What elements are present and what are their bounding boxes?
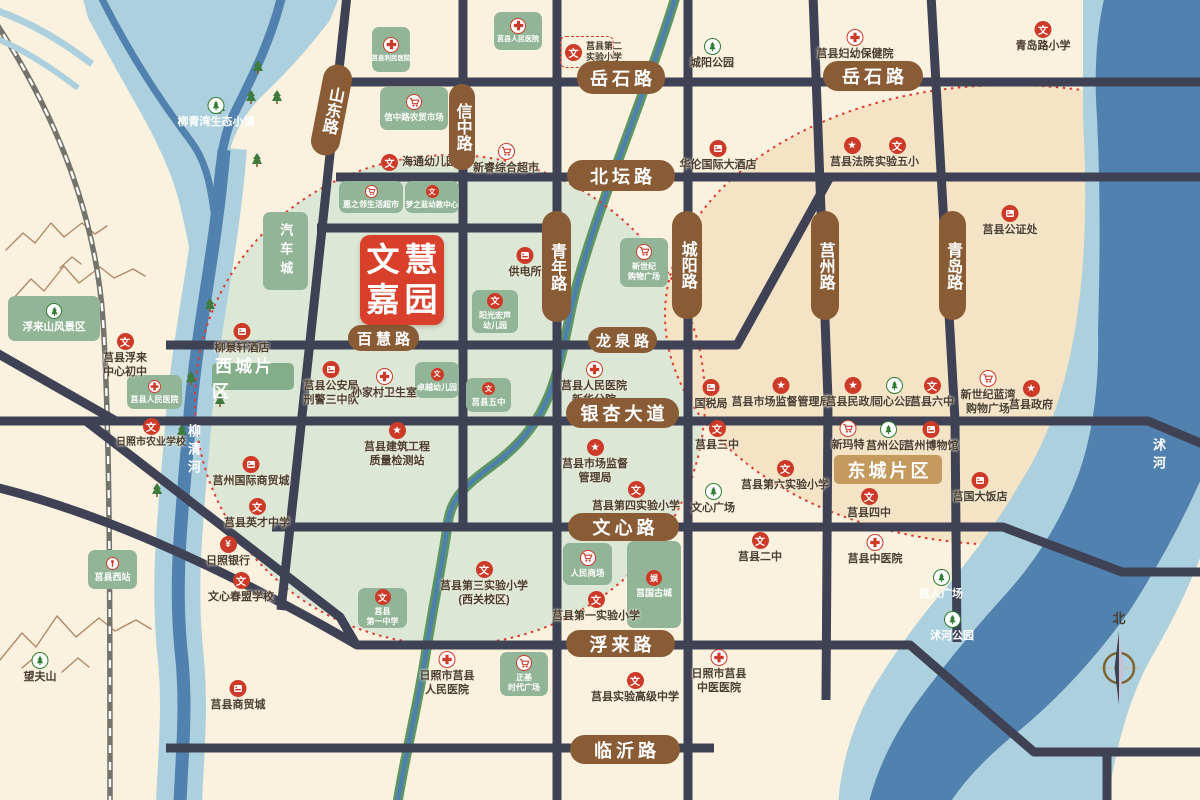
poi-label: 供电所 bbox=[509, 266, 542, 280]
hospital-icon bbox=[711, 649, 728, 666]
map-poi: 文莒县二中 bbox=[738, 532, 782, 565]
poi-label: 莒县第六实验小学 bbox=[741, 479, 829, 493]
road-label-text: 文心路 bbox=[589, 514, 659, 540]
map-poi: 文莒县第六实验小学 bbox=[741, 460, 829, 493]
map-poi: ★莒县法院 bbox=[830, 137, 874, 170]
poi-block-label: 汽车城 bbox=[278, 223, 294, 280]
map-poi: 文心广场 bbox=[691, 483, 735, 516]
road-label: 岳石路 bbox=[823, 61, 923, 91]
poi-label: 莒县三中 bbox=[695, 439, 739, 453]
road-label-text: 莒州路 bbox=[813, 242, 836, 290]
map-poi: ¥日照银行 bbox=[206, 536, 250, 569]
hospital-icon bbox=[586, 361, 603, 378]
road-label: 银杏大道 bbox=[566, 398, 679, 428]
government-icon: ★ bbox=[389, 422, 406, 439]
river-name-label: 柳清河 bbox=[184, 424, 203, 478]
poi-block-label: 人民商场 bbox=[570, 568, 604, 578]
poi-block-label: 莒县利民医院 bbox=[372, 55, 411, 63]
poi-block: 新世纪购物广场 bbox=[620, 238, 668, 287]
poi-label: 莒县建筑工程质量检测站 bbox=[364, 441, 430, 469]
road-label-text: 银杏大道 bbox=[577, 400, 669, 426]
poi-label: 望夫山 bbox=[24, 671, 57, 685]
poi-label: 日照市莒县中医医院 bbox=[692, 668, 747, 696]
poi-block: 正基时代广场 bbox=[500, 652, 548, 696]
poi-block-label: 惠之邻生活超市 bbox=[343, 200, 399, 210]
map-poi: 文海通幼儿园 bbox=[381, 154, 457, 171]
poi-block: 文梦之蓝幼教中心 bbox=[405, 181, 459, 213]
park-icon bbox=[705, 483, 722, 500]
poi-label: 莒县二中 bbox=[738, 551, 782, 565]
park-icon bbox=[880, 421, 897, 438]
shopping-cart-icon bbox=[840, 420, 857, 437]
road-label-text: 百慧路 bbox=[353, 328, 414, 349]
map-poi: 文莒县英才中学 bbox=[224, 498, 290, 531]
poi-label: 日照市农业学校 bbox=[116, 437, 186, 450]
map-poi: 文莒县四中 bbox=[847, 488, 891, 521]
school-icon: 文 bbox=[565, 44, 582, 61]
poi-block: 浮来山风景区 bbox=[8, 296, 100, 341]
shopping-cart-icon bbox=[636, 244, 652, 260]
poi-label: 国税局 bbox=[695, 398, 728, 412]
map-poi: 文莒县六中 bbox=[910, 377, 954, 410]
poi-block-label: 正基 bbox=[516, 673, 532, 683]
road-label-text: 浮来路 bbox=[586, 631, 656, 657]
building-icon bbox=[703, 379, 720, 396]
map-poi: 文实验五小 bbox=[875, 137, 919, 170]
poi-block: 莒县人民医院 bbox=[494, 12, 542, 50]
school-icon: 文 bbox=[375, 589, 391, 605]
road-label-text: 临沂路 bbox=[590, 737, 660, 763]
poi-label: 莒县市场监督管理局 bbox=[732, 396, 831, 410]
park-icon bbox=[32, 652, 49, 669]
school-icon: 文 bbox=[752, 532, 769, 549]
entertainment-icon: 娱 bbox=[646, 570, 662, 586]
poi-label: 孙家村卫生室 bbox=[351, 387, 417, 401]
park-icon bbox=[933, 569, 950, 586]
hospital-icon bbox=[376, 368, 393, 385]
government-icon: ★ bbox=[844, 137, 861, 154]
poi-label: 柳青湾生态小镇 bbox=[178, 116, 255, 130]
poi-label: 文心广场 bbox=[691, 502, 735, 516]
school-icon: 文 bbox=[588, 591, 605, 608]
poi-block-label: 购物广场 bbox=[628, 272, 660, 282]
school-icon: 文 bbox=[628, 481, 645, 498]
poi-block-label: 莒县 bbox=[375, 607, 391, 617]
school-icon: 文 bbox=[777, 460, 794, 477]
shopping-cart-icon bbox=[580, 550, 596, 566]
school-icon: 文 bbox=[431, 368, 444, 381]
poi-label: 华伦国际大酒店 bbox=[680, 159, 757, 173]
hospital-icon bbox=[439, 651, 456, 668]
building-icon bbox=[243, 456, 260, 473]
poi-label: 莒县第四实验小学 bbox=[592, 500, 680, 514]
map-poi: 新世纪蓝湾购物广场 bbox=[961, 370, 1016, 417]
school-icon: 文 bbox=[889, 137, 906, 154]
school-icon: 文 bbox=[627, 672, 644, 689]
train-station-icon bbox=[106, 557, 119, 570]
map-poi: 文莒县第四实验小学 bbox=[592, 481, 680, 514]
poi-block: 汽车城 bbox=[263, 212, 308, 290]
poi-block-label: 梦之蓝幼教中心 bbox=[406, 200, 459, 209]
school-icon: 文 bbox=[233, 572, 250, 589]
road-label-text: 青岛路 bbox=[941, 242, 964, 290]
building-icon bbox=[323, 361, 340, 378]
building-icon bbox=[230, 680, 247, 697]
poi-block: 文莒县第一中学 bbox=[358, 588, 407, 628]
poi-label: 莒县商贸城 bbox=[211, 699, 266, 713]
poi-label: 新世纪蓝湾购物广场 bbox=[961, 389, 1016, 417]
poi-label: 莒县四中 bbox=[847, 507, 891, 521]
park-icon bbox=[208, 97, 225, 114]
road-label-text: 龙泉路 bbox=[592, 330, 653, 351]
school-icon: 文 bbox=[381, 154, 398, 171]
location-map: 文慧 嘉园 北 山东路信中路岳石路岳石路北坛路青年路城阳路莒州路青岛路百慧路龙泉… bbox=[0, 0, 1200, 800]
map-poi: 华伦国际大酒店 bbox=[680, 140, 757, 173]
poi-label: 莒州博物馆 bbox=[904, 440, 959, 454]
map-poi: 新睿综合超市 bbox=[473, 143, 539, 176]
poi-block-label: 时代广场 bbox=[508, 683, 540, 693]
road-label: 北坛路 bbox=[567, 160, 675, 191]
poi-block-label: 阳光宏声 bbox=[479, 311, 511, 321]
poi-block-label: 莒县五中 bbox=[471, 397, 505, 407]
poi-block: 人民商场 bbox=[563, 543, 612, 585]
poi-block: 莒县西站 bbox=[88, 550, 137, 589]
map-poi: 莒县公证处 bbox=[983, 205, 1038, 238]
map-poi: 新玛特 bbox=[832, 420, 865, 453]
map-poi: ★莒县市场监督管理局 bbox=[732, 377, 831, 410]
road-label: 莒州路 bbox=[811, 211, 839, 320]
poi-block: 文阳光宏声幼儿园 bbox=[472, 290, 518, 333]
district-label: 西城片区 bbox=[212, 363, 294, 390]
compass: 北 bbox=[1096, 608, 1142, 708]
poi-label: 文心春盟学校 bbox=[208, 591, 274, 605]
road-label: 浮来路 bbox=[566, 630, 675, 657]
school-icon: 文 bbox=[117, 333, 134, 350]
river-name-label: 沭河 bbox=[1149, 438, 1168, 474]
map-poi: 莒县商贸城 bbox=[211, 680, 266, 713]
poi-block-label: 信中路农贸市场 bbox=[384, 112, 444, 122]
poi-label: 莒州国际商贸城 bbox=[213, 475, 290, 489]
school-icon: 文 bbox=[476, 561, 493, 578]
building-icon bbox=[710, 140, 727, 157]
school-icon: 文 bbox=[861, 488, 878, 505]
map-poi: 城阳公园 bbox=[690, 38, 734, 71]
project-logo-line2: 嘉园 bbox=[362, 280, 443, 320]
poi-label: 莒县实验高级中学 bbox=[591, 691, 679, 705]
building-icon bbox=[1002, 205, 1019, 222]
map-poi: 莒国大饭店 bbox=[953, 472, 1008, 505]
park-icon bbox=[886, 377, 903, 394]
road-label-text: 青年路 bbox=[545, 243, 568, 291]
poi-label: 青岛路小学 bbox=[1016, 40, 1071, 54]
road-label: 信中路 bbox=[449, 84, 475, 170]
park-icon bbox=[46, 303, 62, 319]
hospital-icon bbox=[867, 534, 884, 551]
road-label-text: 岳石路 bbox=[586, 65, 656, 91]
road-label-text: 城阳路 bbox=[675, 241, 698, 289]
road-label: 文心路 bbox=[568, 513, 679, 541]
poi-block-label: 幼儿园 bbox=[483, 321, 507, 331]
road-label: 青年路 bbox=[542, 211, 571, 322]
map-poi: 莒县妇幼保健院 bbox=[817, 29, 894, 62]
road-label-text: 山东路 bbox=[316, 84, 348, 136]
government-icon: ★ bbox=[845, 377, 862, 394]
school-icon: 文 bbox=[709, 420, 726, 437]
road-label: 城阳路 bbox=[672, 211, 702, 319]
road-label: 龙泉路 bbox=[588, 327, 657, 353]
map-poi: 日照市莒县人民医院 bbox=[420, 651, 475, 698]
compass-north-label: 北 bbox=[1112, 608, 1125, 627]
government-icon: ★ bbox=[587, 439, 604, 456]
map-poi: 望夫山 bbox=[24, 652, 57, 685]
poi-block-label: 第一中学 bbox=[367, 617, 399, 627]
building-icon bbox=[517, 247, 534, 264]
poi-block: 文莒县五中 bbox=[466, 378, 511, 412]
map-poi: 日照市莒县中医医院 bbox=[692, 649, 747, 696]
poi-label: 实验五小 bbox=[875, 156, 919, 170]
poi-block: 惠之邻生活超市 bbox=[339, 181, 403, 213]
road-label: 临沂路 bbox=[570, 735, 680, 764]
poi-block: 文卓越幼儿园 bbox=[415, 362, 459, 398]
map-poi: 莒州国际商贸城 bbox=[213, 456, 290, 489]
map-poi: 文莒县实验高级中学 bbox=[591, 672, 679, 705]
project-logo-line1: 文慧 bbox=[362, 240, 443, 280]
government-icon: ★ bbox=[1023, 380, 1040, 397]
building-icon bbox=[972, 472, 989, 489]
road-label: 岳石路 bbox=[577, 61, 665, 94]
park-icon bbox=[704, 38, 721, 55]
poi-label: 莒县公证处 bbox=[983, 224, 1038, 238]
poi-label: 莒国大饭店 bbox=[953, 491, 1008, 505]
map-poi: 文文心春盟学校 bbox=[208, 572, 274, 605]
map-poi: 文青岛路小学 bbox=[1016, 21, 1071, 54]
map-poi: 莒县中医院 bbox=[848, 534, 903, 567]
map-poi: 柳景轩酒店 bbox=[215, 323, 270, 356]
map-poi: 柳青湾生态小镇 bbox=[178, 97, 255, 130]
hospital-icon bbox=[383, 37, 399, 53]
poi-block: 信中路农贸市场 bbox=[380, 87, 448, 130]
poi-label: 沭河公园 bbox=[930, 630, 974, 644]
poi-label: 柳景轩酒店 bbox=[215, 342, 270, 356]
poi-block-label: 莒县人民医院 bbox=[497, 36, 539, 44]
poi-label: 新睿综合超市 bbox=[473, 162, 539, 176]
bank-icon: ¥ bbox=[220, 536, 237, 553]
poi-block: 莒县利民医院 bbox=[372, 27, 410, 72]
map-poi: ★莒县政府 bbox=[1009, 380, 1053, 413]
poi-block-label: 莒县西站 bbox=[94, 572, 130, 583]
poi-label: 城阳公园 bbox=[690, 57, 734, 71]
poi-block-label: 浮来山风景区 bbox=[23, 321, 86, 334]
road-label-text: 岳石路 bbox=[838, 63, 908, 89]
road-label: 青岛路 bbox=[939, 211, 966, 320]
shopping-cart-icon bbox=[498, 143, 515, 160]
school-icon: 文 bbox=[482, 382, 495, 395]
map-poi: ★莒县建筑工程质量检测站 bbox=[364, 422, 430, 469]
map-poi: 文莒县第三实验小学(西关校区) bbox=[440, 561, 528, 608]
hospital-icon bbox=[847, 29, 864, 46]
map-poi: 莒人广场 bbox=[919, 569, 963, 602]
poi-block-label: 新世纪 bbox=[632, 262, 656, 272]
park-icon bbox=[944, 611, 961, 628]
map-poi: 文莒县三中 bbox=[695, 420, 739, 453]
shopping-cart-icon bbox=[406, 94, 422, 110]
poi-block-label: 莒国古城 bbox=[636, 588, 672, 599]
shopping-cart-icon bbox=[365, 185, 378, 198]
building-icon bbox=[234, 323, 251, 340]
map-poi: 文日照市农业学校 bbox=[116, 418, 186, 450]
poi-label: 莒县妇幼保健院 bbox=[817, 48, 894, 62]
poi-block: 莒县人民医院 bbox=[127, 375, 182, 409]
map-poi: 国税局 bbox=[695, 379, 728, 412]
project-logo: 文慧 嘉园 bbox=[360, 235, 444, 325]
compass-needle-icon bbox=[1096, 628, 1142, 708]
district-label-text: 东城片区 bbox=[845, 457, 932, 483]
poi-label: 莒县第三实验小学(西关校区) bbox=[440, 580, 528, 608]
road-label-text: 信中路 bbox=[450, 103, 473, 151]
road-label: 百慧路 bbox=[348, 325, 419, 351]
map-poi: 沭河公园 bbox=[930, 611, 974, 644]
map-poi: 孙家村卫生室 bbox=[351, 368, 417, 401]
poi-label: 莒县中医院 bbox=[848, 553, 903, 567]
district-label: 东城片区 bbox=[834, 455, 942, 484]
map-poi: 莒州博物馆 bbox=[904, 421, 959, 454]
government-icon: ★ bbox=[773, 377, 790, 394]
poi-block-label: 卓越幼儿园 bbox=[417, 383, 457, 393]
school-icon: 文 bbox=[143, 418, 160, 435]
school-icon: 文 bbox=[426, 185, 439, 198]
road-label-text: 北坛路 bbox=[586, 163, 656, 189]
school-icon: 文 bbox=[249, 498, 266, 515]
map-poi: 供电所 bbox=[509, 247, 542, 280]
map-poi: 文莒县浮来中心初中 bbox=[103, 333, 147, 380]
shopping-cart-icon bbox=[980, 370, 997, 387]
poi-label: 日照银行 bbox=[206, 555, 250, 569]
poi-label: 莒县法院 bbox=[830, 156, 874, 170]
hospital-icon bbox=[148, 380, 161, 393]
school-icon: 文 bbox=[924, 377, 941, 394]
poi-label: 莒县政府 bbox=[1009, 399, 1053, 413]
poi-label: 莒县英才中学 bbox=[224, 517, 290, 531]
map-poi: ★莒县市场监督管理局 bbox=[562, 439, 628, 486]
poi-label: 莒县六中 bbox=[910, 396, 954, 410]
poi-label: 莒人广场 bbox=[919, 588, 963, 602]
school-icon: 文 bbox=[1035, 21, 1052, 38]
poi-label: 日照市莒县人民医院 bbox=[420, 670, 475, 698]
poi-label: 莒县第一实验小学 bbox=[552, 610, 640, 624]
shopping-cart-icon bbox=[516, 655, 532, 671]
map-poi: 文莒县第一实验小学 bbox=[552, 591, 640, 624]
poi-label: 新玛特 bbox=[832, 439, 865, 453]
district-label-text: 西城片区 bbox=[212, 352, 294, 402]
hospital-icon bbox=[510, 18, 526, 34]
poi-block-label: 莒县人民医院 bbox=[131, 395, 179, 405]
poi-label: 莒县浮来中心初中 bbox=[103, 352, 147, 380]
school-icon: 文 bbox=[487, 293, 503, 309]
building-icon bbox=[923, 421, 940, 438]
